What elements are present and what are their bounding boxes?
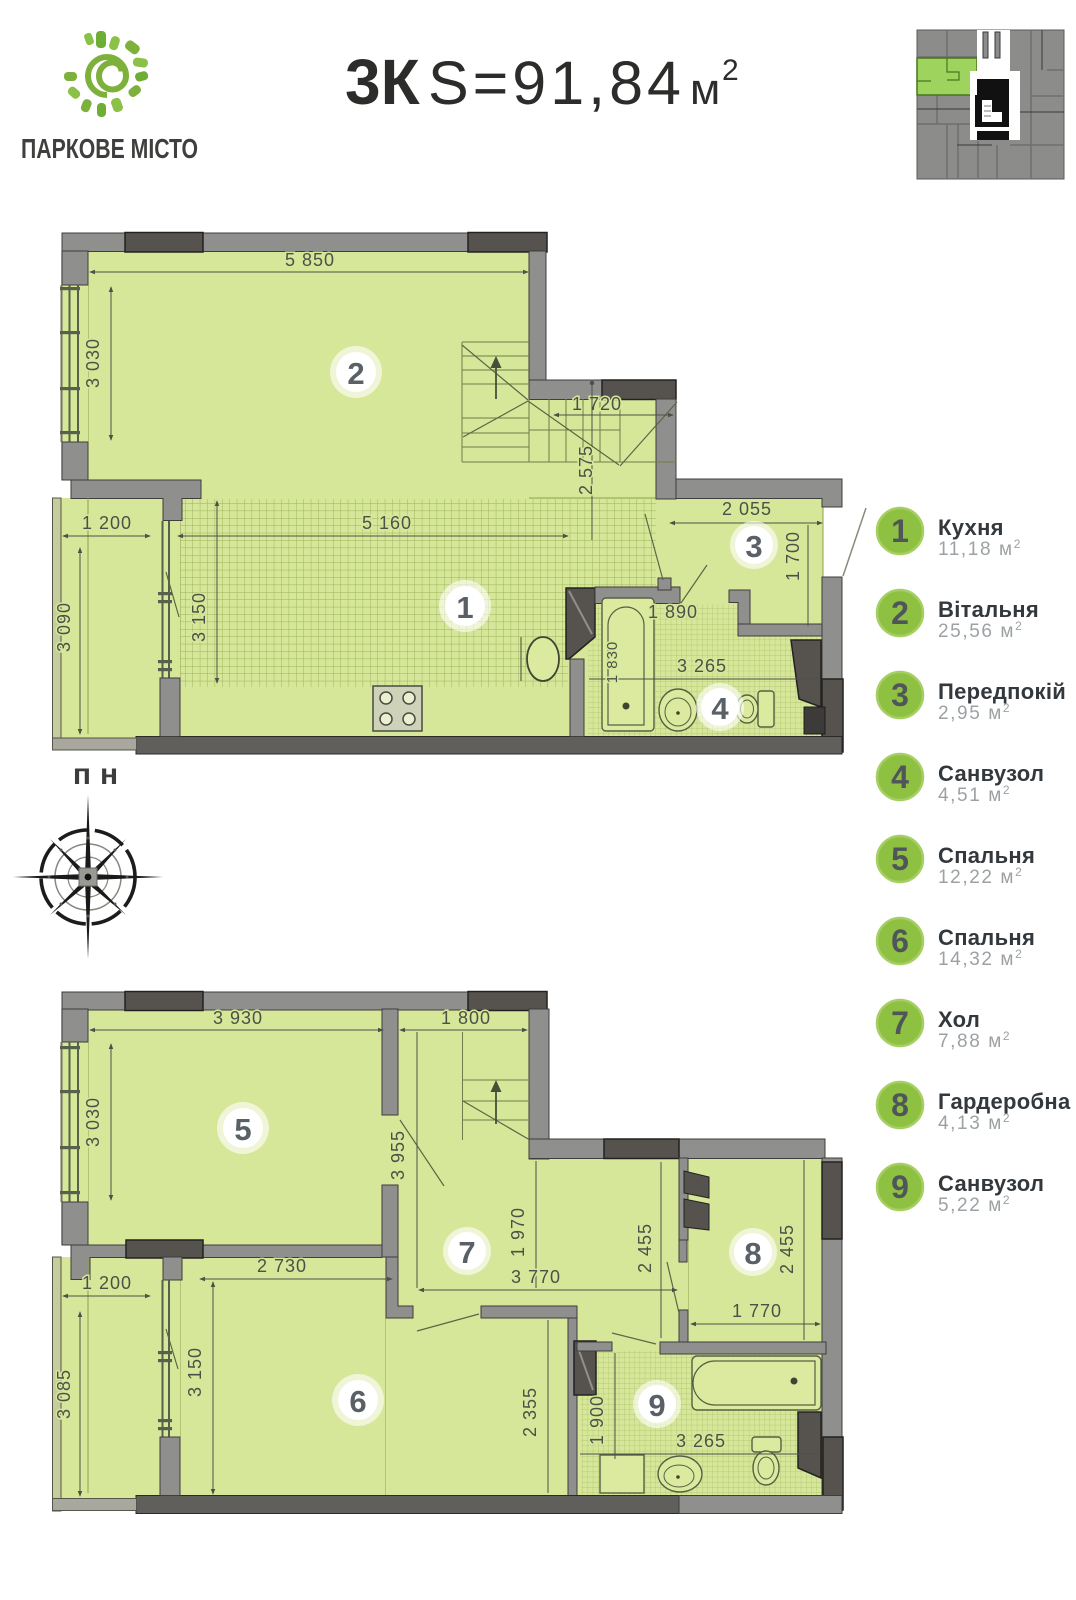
svg-text:2 355: 2 355 (520, 1387, 540, 1437)
svg-text:3 150: 3 150 (185, 1347, 205, 1397)
svg-text:6: 6 (891, 923, 909, 959)
svg-text:5: 5 (234, 1112, 251, 1147)
svg-text:2: 2 (347, 356, 364, 391)
svg-text:5 160: 5 160 (362, 513, 412, 533)
svg-text:Хол: Хол (938, 1007, 980, 1032)
svg-text:1 890: 1 890 (648, 602, 698, 622)
svg-text:8: 8 (744, 1236, 761, 1271)
svg-text:3 090: 3 090 (54, 602, 74, 652)
svg-text:25,56 м2: 25,56 м2 (938, 619, 1023, 642)
svg-text:2 455: 2 455 (777, 1224, 797, 1274)
svg-text:1: 1 (891, 513, 909, 549)
svg-text:12,22 м2: 12,22 м2 (938, 865, 1023, 888)
svg-text:9: 9 (891, 1169, 909, 1205)
svg-text:3: 3 (891, 677, 909, 713)
svg-text:6: 6 (349, 1384, 366, 1419)
svg-text:3 955: 3 955 (388, 1130, 408, 1180)
svg-text:3 770: 3 770 (511, 1267, 561, 1287)
svg-text:7: 7 (891, 1005, 909, 1041)
svg-text:1 900: 1 900 (587, 1395, 607, 1445)
svg-text:ПАРКОВЕ МІСТО: ПАРКОВЕ МІСТО (21, 133, 198, 164)
svg-text:1 200: 1 200 (82, 513, 132, 533)
svg-text:7,88 м2: 7,88 м2 (938, 1029, 1011, 1052)
svg-text:5: 5 (891, 841, 909, 877)
svg-text:1 200: 1 200 (82, 1273, 132, 1293)
svg-text:3 030: 3 030 (83, 338, 103, 388)
svg-text:1 700: 1 700 (783, 531, 803, 581)
svg-text:2: 2 (722, 54, 739, 87)
svg-text:2,95 м2: 2,95 м2 (938, 701, 1011, 724)
svg-text:Санвузол: Санвузол (938, 761, 1044, 786)
svg-text:3К: 3К (345, 46, 421, 118)
svg-text:5 850: 5 850 (285, 250, 335, 270)
svg-text:7: 7 (458, 1235, 475, 1270)
svg-text:9: 9 (648, 1388, 665, 1423)
svg-text:1 720: 1 720 (572, 394, 622, 414)
svg-text:4,51 м2: 4,51 м2 (938, 783, 1011, 806)
svg-text:4,13 м2: 4,13 м2 (938, 1111, 1011, 1134)
svg-text:3 265: 3 265 (677, 656, 727, 676)
svg-text:3 930: 3 930 (213, 1008, 263, 1028)
svg-text:4: 4 (891, 759, 909, 795)
svg-text:8: 8 (891, 1087, 909, 1123)
svg-text:S=91,84: S=91,84 (428, 49, 685, 117)
svg-text:Санвузол: Санвузол (938, 1171, 1044, 1196)
svg-text:Кухня: Кухня (938, 515, 1004, 540)
svg-text:3: 3 (745, 529, 762, 564)
svg-text:1: 1 (456, 590, 473, 625)
svg-text:1 800: 1 800 (441, 1008, 491, 1028)
svg-text:2 055: 2 055 (722, 499, 772, 519)
svg-text:2: 2 (891, 595, 909, 631)
svg-text:1 970: 1 970 (508, 1207, 528, 1257)
svg-text:5,22 м2: 5,22 м2 (938, 1193, 1011, 1216)
svg-text:3 265: 3 265 (676, 1431, 726, 1451)
svg-text:2 730: 2 730 (257, 1256, 307, 1276)
svg-text:1 830: 1 830 (604, 641, 621, 684)
svg-text:2 455: 2 455 (635, 1223, 655, 1273)
svg-text:1 770: 1 770 (732, 1301, 782, 1321)
svg-text:м: м (690, 65, 720, 114)
svg-text:11,18 м2: 11,18 м2 (938, 537, 1022, 560)
svg-text:3 150: 3 150 (189, 592, 209, 642)
svg-text:2 575: 2 575 (576, 445, 596, 495)
svg-text:пн: пн (73, 758, 127, 791)
svg-text:3 030: 3 030 (83, 1097, 103, 1147)
svg-text:Вітальня: Вітальня (938, 597, 1039, 622)
svg-text:14,32 м2: 14,32 м2 (938, 947, 1023, 970)
svg-text:4: 4 (711, 691, 729, 726)
svg-text:3 085: 3 085 (54, 1369, 74, 1419)
